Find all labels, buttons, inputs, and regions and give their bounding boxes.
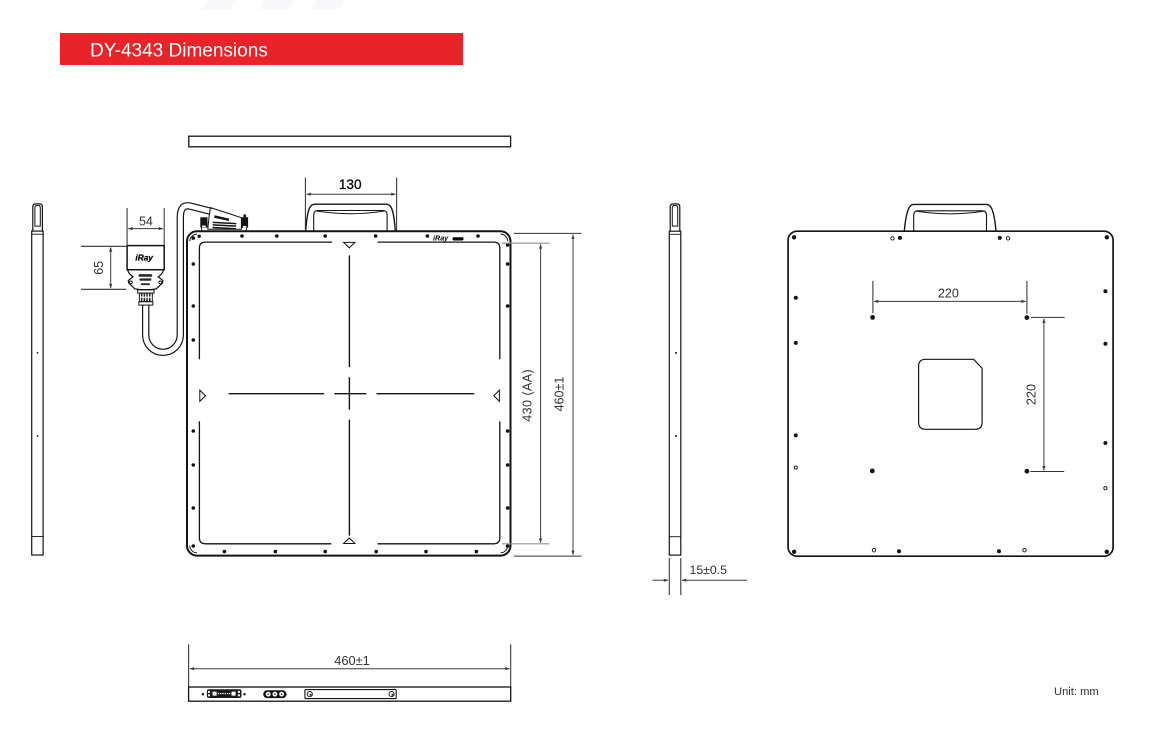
svg-text:130: 130	[339, 177, 362, 192]
svg-text:220: 220	[1025, 384, 1039, 405]
svg-text:iRay: iRay	[433, 234, 449, 243]
svg-text:54: 54	[139, 214, 153, 228]
svg-text:DY-4343 Dimensions: DY-4343 Dimensions	[90, 41, 268, 62]
svg-text:15±0.5: 15±0.5	[690, 563, 728, 577]
svg-text:460±1: 460±1	[553, 377, 567, 412]
svg-text:65: 65	[92, 261, 106, 275]
svg-text:430 (AA): 430 (AA)	[521, 369, 535, 422]
svg-text:460±1: 460±1	[334, 653, 370, 668]
svg-text:220: 220	[938, 287, 959, 301]
svg-text:iRay: iRay	[135, 252, 153, 262]
svg-text:Unit: mm: Unit: mm	[1054, 686, 1099, 698]
